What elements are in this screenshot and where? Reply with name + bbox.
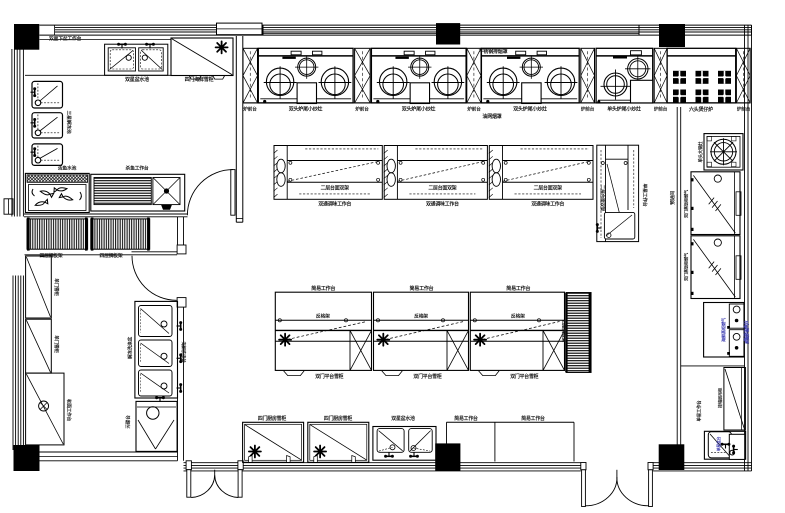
svg-text:炉前台: 炉前台 [581,105,595,112]
svg-text:双星盆水池: 双星盆水池 [391,415,415,422]
svg-text:炉前台: 炉前台 [467,105,481,112]
svg-text:双通调味工作台: 双通调味工作台 [318,201,351,208]
svg-text:不锈钢排烟罩: 不锈钢排烟罩 [479,48,508,55]
svg-text:炉前台: 炉前台 [654,105,668,112]
svg-text:双门平台雪柜: 双门平台雪柜 [510,373,538,380]
svg-text:反格架: 反格架 [511,312,525,319]
svg-text:海鲜蒸柜燃气: 海鲜蒸柜燃气 [720,317,727,342]
svg-text:二层台面双架: 二层台面双架 [321,184,349,191]
svg-text:双门平台雪柜: 双门平台雪柜 [315,373,343,380]
svg-text:双门平台雪柜: 双门平台雪柜 [413,373,441,380]
svg-text:预进间: 预进间 [669,191,676,205]
svg-text:双通调味工作台: 双通调味工作台 [426,201,459,208]
svg-text:解冻洗涤盆: 解冻洗涤盆 [127,336,134,359]
svg-text:和面工作台: 和面工作台 [66,398,73,422]
svg-text:反格架: 反格架 [316,312,330,319]
svg-text:双头炉尾小炒灶: 双头炉尾小炒灶 [513,106,547,113]
svg-text:单门雪柜: 单门雪柜 [53,278,60,296]
svg-text:简易工作台: 简易工作台 [454,415,478,422]
svg-text:六头煲仔炉: 六头煲仔炉 [689,106,713,113]
svg-text:挂墙层吊柜: 挂墙层吊柜 [717,387,724,408]
svg-text:双通调味工作台: 双通调味工作台 [531,201,564,208]
svg-text:简易工作台: 简易工作台 [521,415,545,422]
svg-text:炉前台: 炉前台 [355,105,369,112]
svg-text:单星工作台: 单星工作台 [696,400,703,422]
svg-text:炉前台: 炉前台 [737,105,751,112]
svg-text:双门蒸饭柜燃气: 双门蒸饭柜燃气 [683,189,690,218]
svg-text:四层搁板架: 四层搁板架 [561,320,568,343]
svg-text:双头炉尾小炒灶: 双头炉尾小炒灶 [289,106,323,113]
svg-text:油网烟罩: 油网烟罩 [482,113,501,120]
svg-text:双门蒸饭柜燃气: 双门蒸饭柜燃气 [683,252,690,281]
svg-text:炉前台: 炉前台 [243,105,257,112]
svg-text:单星盆台: 单星盆台 [716,436,721,451]
svg-text:二层台面双架: 二层台面双架 [428,184,456,191]
svg-text:简易工作台: 简易工作台 [743,320,750,342]
svg-text:四门厨房雪柜: 四门厨房雪柜 [258,415,286,422]
svg-text:四层搁板架: 四层搁板架 [100,252,123,259]
svg-text:杀鱼工作台: 杀鱼工作台 [126,165,149,172]
svg-text:双头炉尾小炒灶: 双头炉尾小炒灶 [402,106,436,113]
svg-text:简易工作台: 简易工作台 [409,285,433,292]
svg-text:单门雪柜: 单门雪柜 [53,335,60,353]
svg-text:四门厨房雪柜: 四门厨房雪柜 [324,415,352,422]
svg-text:简易工作台: 简易工作台 [506,285,530,292]
svg-text:简易工作台: 简易工作台 [311,285,335,292]
svg-text:四门海鲜雪柜: 四门海鲜雪柜 [185,76,214,83]
svg-text:活鱼水池: 活鱼水池 [58,165,77,172]
svg-text:海鲜洗涤盆: 海鲜洗涤盆 [180,342,187,364]
svg-text:单头大锅灶: 单头大锅灶 [697,141,704,163]
svg-text:反格架: 反格架 [414,312,428,319]
svg-text:单头炉尾小炒灶: 单头炉尾小炒灶 [607,106,641,113]
svg-text:三星解冻池: 三星解冻池 [66,111,73,134]
svg-text:二层台面双架: 二层台面双架 [599,185,606,212]
svg-text:双星下盆工作台: 双星下盆工作台 [49,35,82,42]
svg-text:双星盆水池: 双星盆水池 [125,76,149,83]
svg-text:单星工作台: 单星工作台 [642,184,649,207]
svg-text:二层台面双架: 二层台面双架 [534,184,562,191]
svg-text:污碟台: 污碟台 [125,415,132,429]
